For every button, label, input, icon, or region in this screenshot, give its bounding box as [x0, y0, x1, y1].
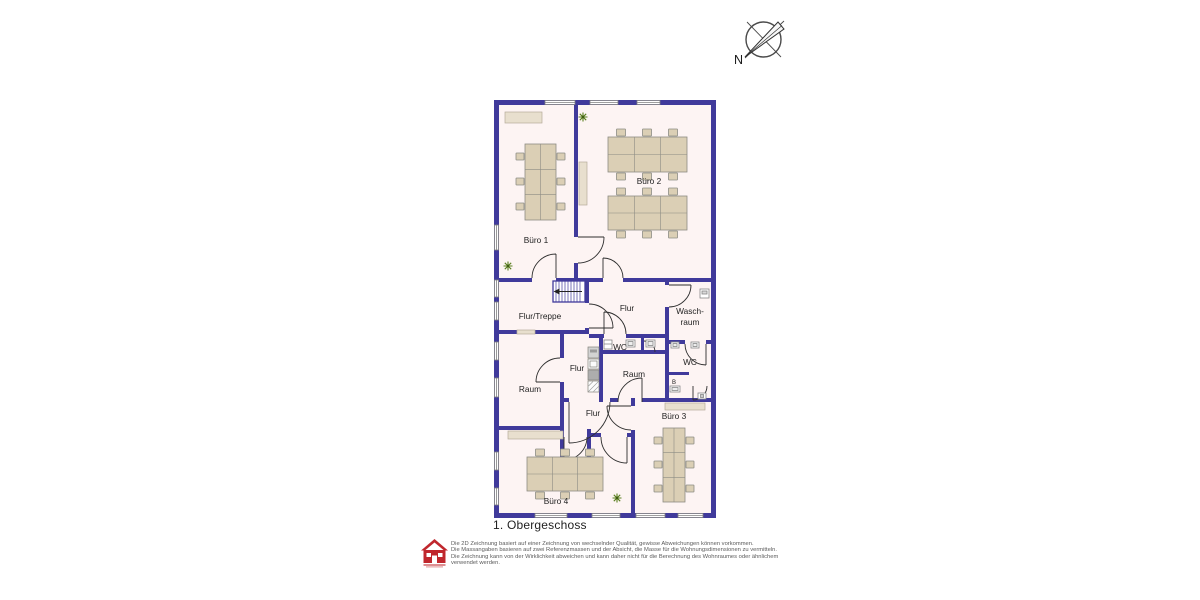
cabinet-buero2 [579, 162, 587, 205]
disclaimer-line: Die Zeichnung kann von der Wirklichkeit … [451, 554, 791, 560]
room-label-waschraum-2: raum [681, 317, 700, 327]
plant-icon [579, 113, 588, 122]
sink-wc-middle [604, 340, 612, 349]
plant-icon [504, 262, 513, 271]
compass-north-label: N [734, 53, 743, 66]
desk-group-buero1 [516, 144, 565, 220]
room-label-raum-left: Raum [519, 384, 541, 394]
room-label-flur-lower: Flur [586, 408, 601, 418]
room-label-buero1: Büro 1 [524, 235, 549, 245]
room-label-buero4: Büro 4 [544, 496, 569, 506]
room-label-buero2: Büro 2 [637, 176, 662, 186]
stairs [553, 281, 585, 302]
disclaimer-line: verwendet werden. [451, 560, 791, 566]
cabinet-buero4 [508, 431, 563, 439]
room-label-buero3: Büro 3 [662, 411, 687, 421]
room-label-waschraum-1: Wasch- [676, 306, 704, 316]
floor-title: 1. Obergeschoss [493, 518, 587, 532]
plant-icon [613, 494, 622, 503]
floor-plan: Büro 1 Büro 2 Flur/Treppe Flur Wasch- ra… [494, 100, 716, 518]
room-label-raum-middle: Raum [623, 369, 645, 379]
room-label-flur-upper: Flur [620, 303, 635, 313]
room-label-flur-kitchen: Flur [570, 363, 585, 373]
wall-insert [517, 330, 535, 334]
shelf-buero3 [665, 403, 705, 410]
room-label-wc-right: WC [683, 357, 697, 367]
boiler-label: B [672, 380, 676, 386]
room-label-flur-treppe: Flur/Treppe [519, 311, 562, 321]
desk-group-buero3 [654, 428, 694, 502]
disclaimer-line: Die Massangaben basieren auf zwei Refere… [451, 547, 791, 553]
room-label-wc-middle: WC [613, 342, 627, 352]
compass-icon: N [730, 8, 790, 66]
disclaimer-text: Die 2D Zeichnung basiert auf einer Zeich… [451, 541, 791, 566]
company-logo-icon [421, 539, 448, 568]
shelf-buero1 [505, 112, 542, 123]
